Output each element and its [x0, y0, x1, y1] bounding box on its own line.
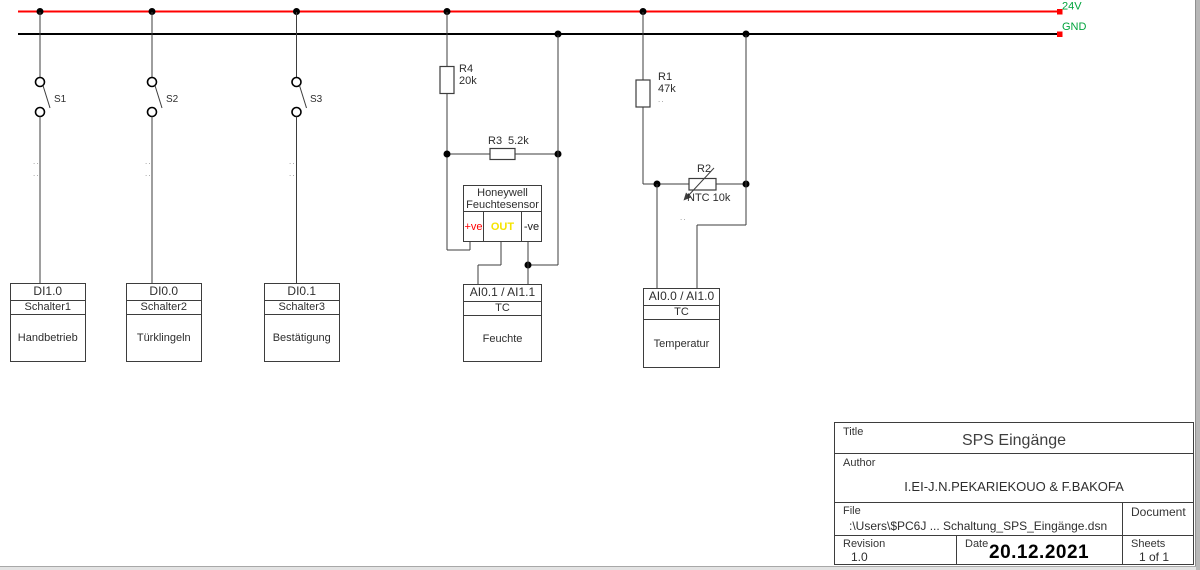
block-device: Schalter2: [127, 301, 201, 315]
schematic-author: I.EI-J.N.PEKARIEKOUO & F.BAKOFA: [835, 479, 1193, 494]
resistor-value: 47k: [658, 83, 676, 95]
power-rail-24v[interactable]: 24V: [18, 1, 1082, 15]
switch-contact: [36, 108, 45, 117]
block-device: Schalter1: [11, 301, 85, 315]
block-function: Feuchte: [464, 316, 541, 361]
document-cell: Document: [1122, 503, 1193, 535]
ai-block-feuchte[interactable]: AI0.1 / AI1.1 TC Feuchte: [463, 284, 542, 362]
title-block[interactable]: Title SPS Eingänge Author I.EI-J.N.PEKAR…: [834, 422, 1194, 565]
switch-branch-s2[interactable]: S2 .. ..: [145, 8, 179, 283]
block-address: AI0.0 / AI1.0: [644, 289, 719, 306]
switch-ref: S1: [54, 94, 67, 105]
file-path: :\Users\$PC6J ... Schaltung_SPS_Eingänge…: [849, 519, 1107, 533]
document-label: Document: [1131, 505, 1186, 519]
sensor-pin-positive[interactable]: +ve: [464, 212, 483, 241]
resistor-value: 5.2k: [508, 135, 529, 147]
block-function: Handbetrieb: [11, 315, 85, 361]
sensor-name: Honeywell: [464, 187, 541, 199]
di-block-schalter2[interactable]: DI0.0 Schalter2 Türklingeln: [126, 283, 202, 362]
date-cell: Date 20.12.2021: [956, 536, 1122, 564]
attribute-dots: ..: [145, 169, 151, 178]
attribute-dots: ..: [680, 213, 686, 222]
resistor-ref: R4: [459, 63, 473, 75]
attribute-dots: ..: [289, 157, 295, 166]
block-address: DI0.0: [127, 284, 201, 301]
attribute-dots: ..: [33, 157, 39, 166]
resistor-value: 20k: [459, 75, 477, 87]
resistor-ref: R1: [658, 71, 672, 83]
attribute-dots: ..: [145, 157, 151, 166]
junction-dot: [444, 151, 451, 158]
switch-contact: [148, 108, 157, 117]
switch-branch-s3[interactable]: S3 .. ..: [289, 8, 323, 283]
switch-contact: [292, 108, 301, 117]
di-block-schalter1[interactable]: DI1.0 Schalter1 Handbetrieb: [10, 283, 86, 362]
humidity-sensor-pins[interactable]: +ve OUT -ve: [463, 211, 542, 242]
block-device: TC: [464, 302, 541, 316]
window-edge-right: [1196, 0, 1200, 570]
sensor-pin-out[interactable]: OUT: [483, 212, 521, 241]
schematic-canvas: 24V GND S1 .. .. S2 ..: [0, 0, 1200, 570]
block-address: AI0.1 / AI1.1: [464, 285, 541, 302]
sheets-label: Sheets: [1131, 538, 1165, 550]
attribute-dots: ..: [658, 95, 664, 104]
block-function: Bestätigung: [265, 315, 339, 361]
revision-cell: Revision 1.0: [835, 536, 956, 564]
sensor-type: Feuchtesensor: [464, 199, 541, 211]
sensor-pin-negative[interactable]: -ve: [521, 212, 541, 241]
resistor-value: NTC 10k: [687, 192, 731, 204]
resistor-r3[interactable]: R3 5.2k: [444, 135, 562, 160]
block-function: Türklingeln: [127, 315, 201, 361]
switch-branch-s1[interactable]: S1 .. ..: [33, 8, 67, 283]
author-row: Author I.EI-J.N.PEKARIEKOUO & F.BAKOFA: [835, 454, 1193, 503]
block-device: Schalter3: [265, 301, 339, 315]
temperature-wiring: [657, 31, 750, 289]
title-row: Title SPS Eingänge: [835, 423, 1193, 454]
switch-contact: [148, 78, 157, 87]
power-rail-gnd[interactable]: GND: [18, 21, 1087, 37]
file-cell: File :\Users\$PC6J ... Schaltung_SPS_Ein…: [835, 503, 1122, 535]
switch-contact: [36, 78, 45, 87]
author-label: Author: [843, 457, 875, 469]
switch-ref: S3: [310, 94, 323, 105]
rail-label-24v: 24V: [1062, 1, 1082, 13]
humidity-sensor-title[interactable]: Honeywell Feuchtesensor: [463, 185, 542, 212]
switch-contact: [292, 78, 301, 87]
resistor-ref: R3: [488, 135, 502, 147]
block-address: DI1.0: [11, 284, 85, 301]
attribute-dots: ..: [289, 169, 295, 178]
attribute-dots: ..: [33, 169, 39, 178]
di-block-schalter3[interactable]: DI0.1 Schalter3 Bestätigung: [264, 283, 340, 362]
file-label: File: [843, 505, 861, 517]
file-row: File :\Users\$PC6J ... Schaltung_SPS_Ein…: [835, 503, 1193, 536]
block-address: DI0.1: [265, 284, 339, 301]
sheets-value: 1 of 1: [1139, 550, 1169, 564]
date-value: 20.12.2021: [989, 542, 1089, 564]
sheets-cell: Sheets 1 of 1: [1122, 536, 1193, 564]
revision-label: Revision: [843, 538, 885, 550]
schematic-title: SPS Eingänge: [835, 432, 1193, 450]
ai-block-temperatur[interactable]: AI0.0 / AI1.0 TC Temperatur: [643, 288, 720, 368]
revision-row: Revision 1.0 Date 20.12.2021 Sheets 1 of…: [835, 536, 1193, 564]
revision-value: 1.0: [851, 550, 868, 564]
block-function: Temperatur: [644, 320, 719, 367]
block-device: TC: [644, 306, 719, 320]
switch-ref: S2: [166, 94, 179, 105]
rail-label-gnd: GND: [1062, 21, 1087, 33]
date-label: Date: [965, 538, 988, 550]
resistor-ref: R2: [697, 163, 711, 175]
thermistor-r2[interactable]: R2 NTC 10k ..: [643, 163, 750, 222]
